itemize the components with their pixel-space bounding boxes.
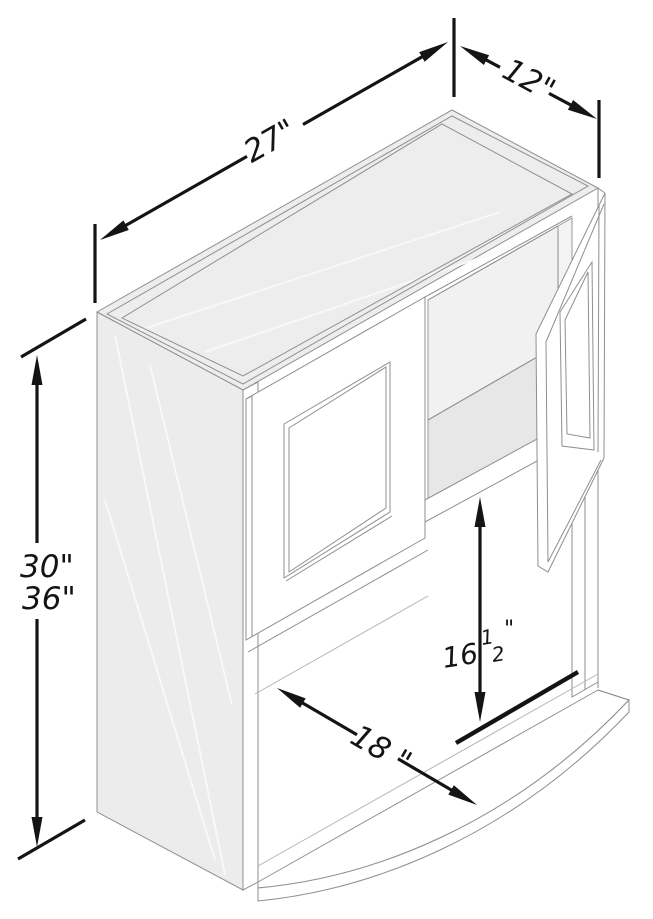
opening-height-denominator-label: 2 <box>490 641 506 667</box>
opening-height-unit-label: " <box>504 617 514 642</box>
dimension-opening-width-18: 18 " <box>277 688 477 805</box>
width-dimension-label: 27" <box>238 112 302 170</box>
drawing-canvas: 27" 12" 30" 36" 16 1 2 " 18 " <box>0 0 653 919</box>
opening-height-whole-label: 16 <box>440 637 480 675</box>
dimension-height-30-36: 30" 36" <box>18 319 86 859</box>
height-dimension-label-30: 30" <box>20 549 74 585</box>
cabinet-left-side-panel <box>97 312 243 890</box>
cabinet-dimension-drawing: 27" 12" 30" 36" 16 1 2 " 18 " <box>0 0 653 919</box>
height-dimension-label-36: 36" <box>22 581 76 617</box>
opening-width-dimension-label: 18 " <box>345 718 418 781</box>
depth-dimension-label: 12" <box>497 52 561 109</box>
